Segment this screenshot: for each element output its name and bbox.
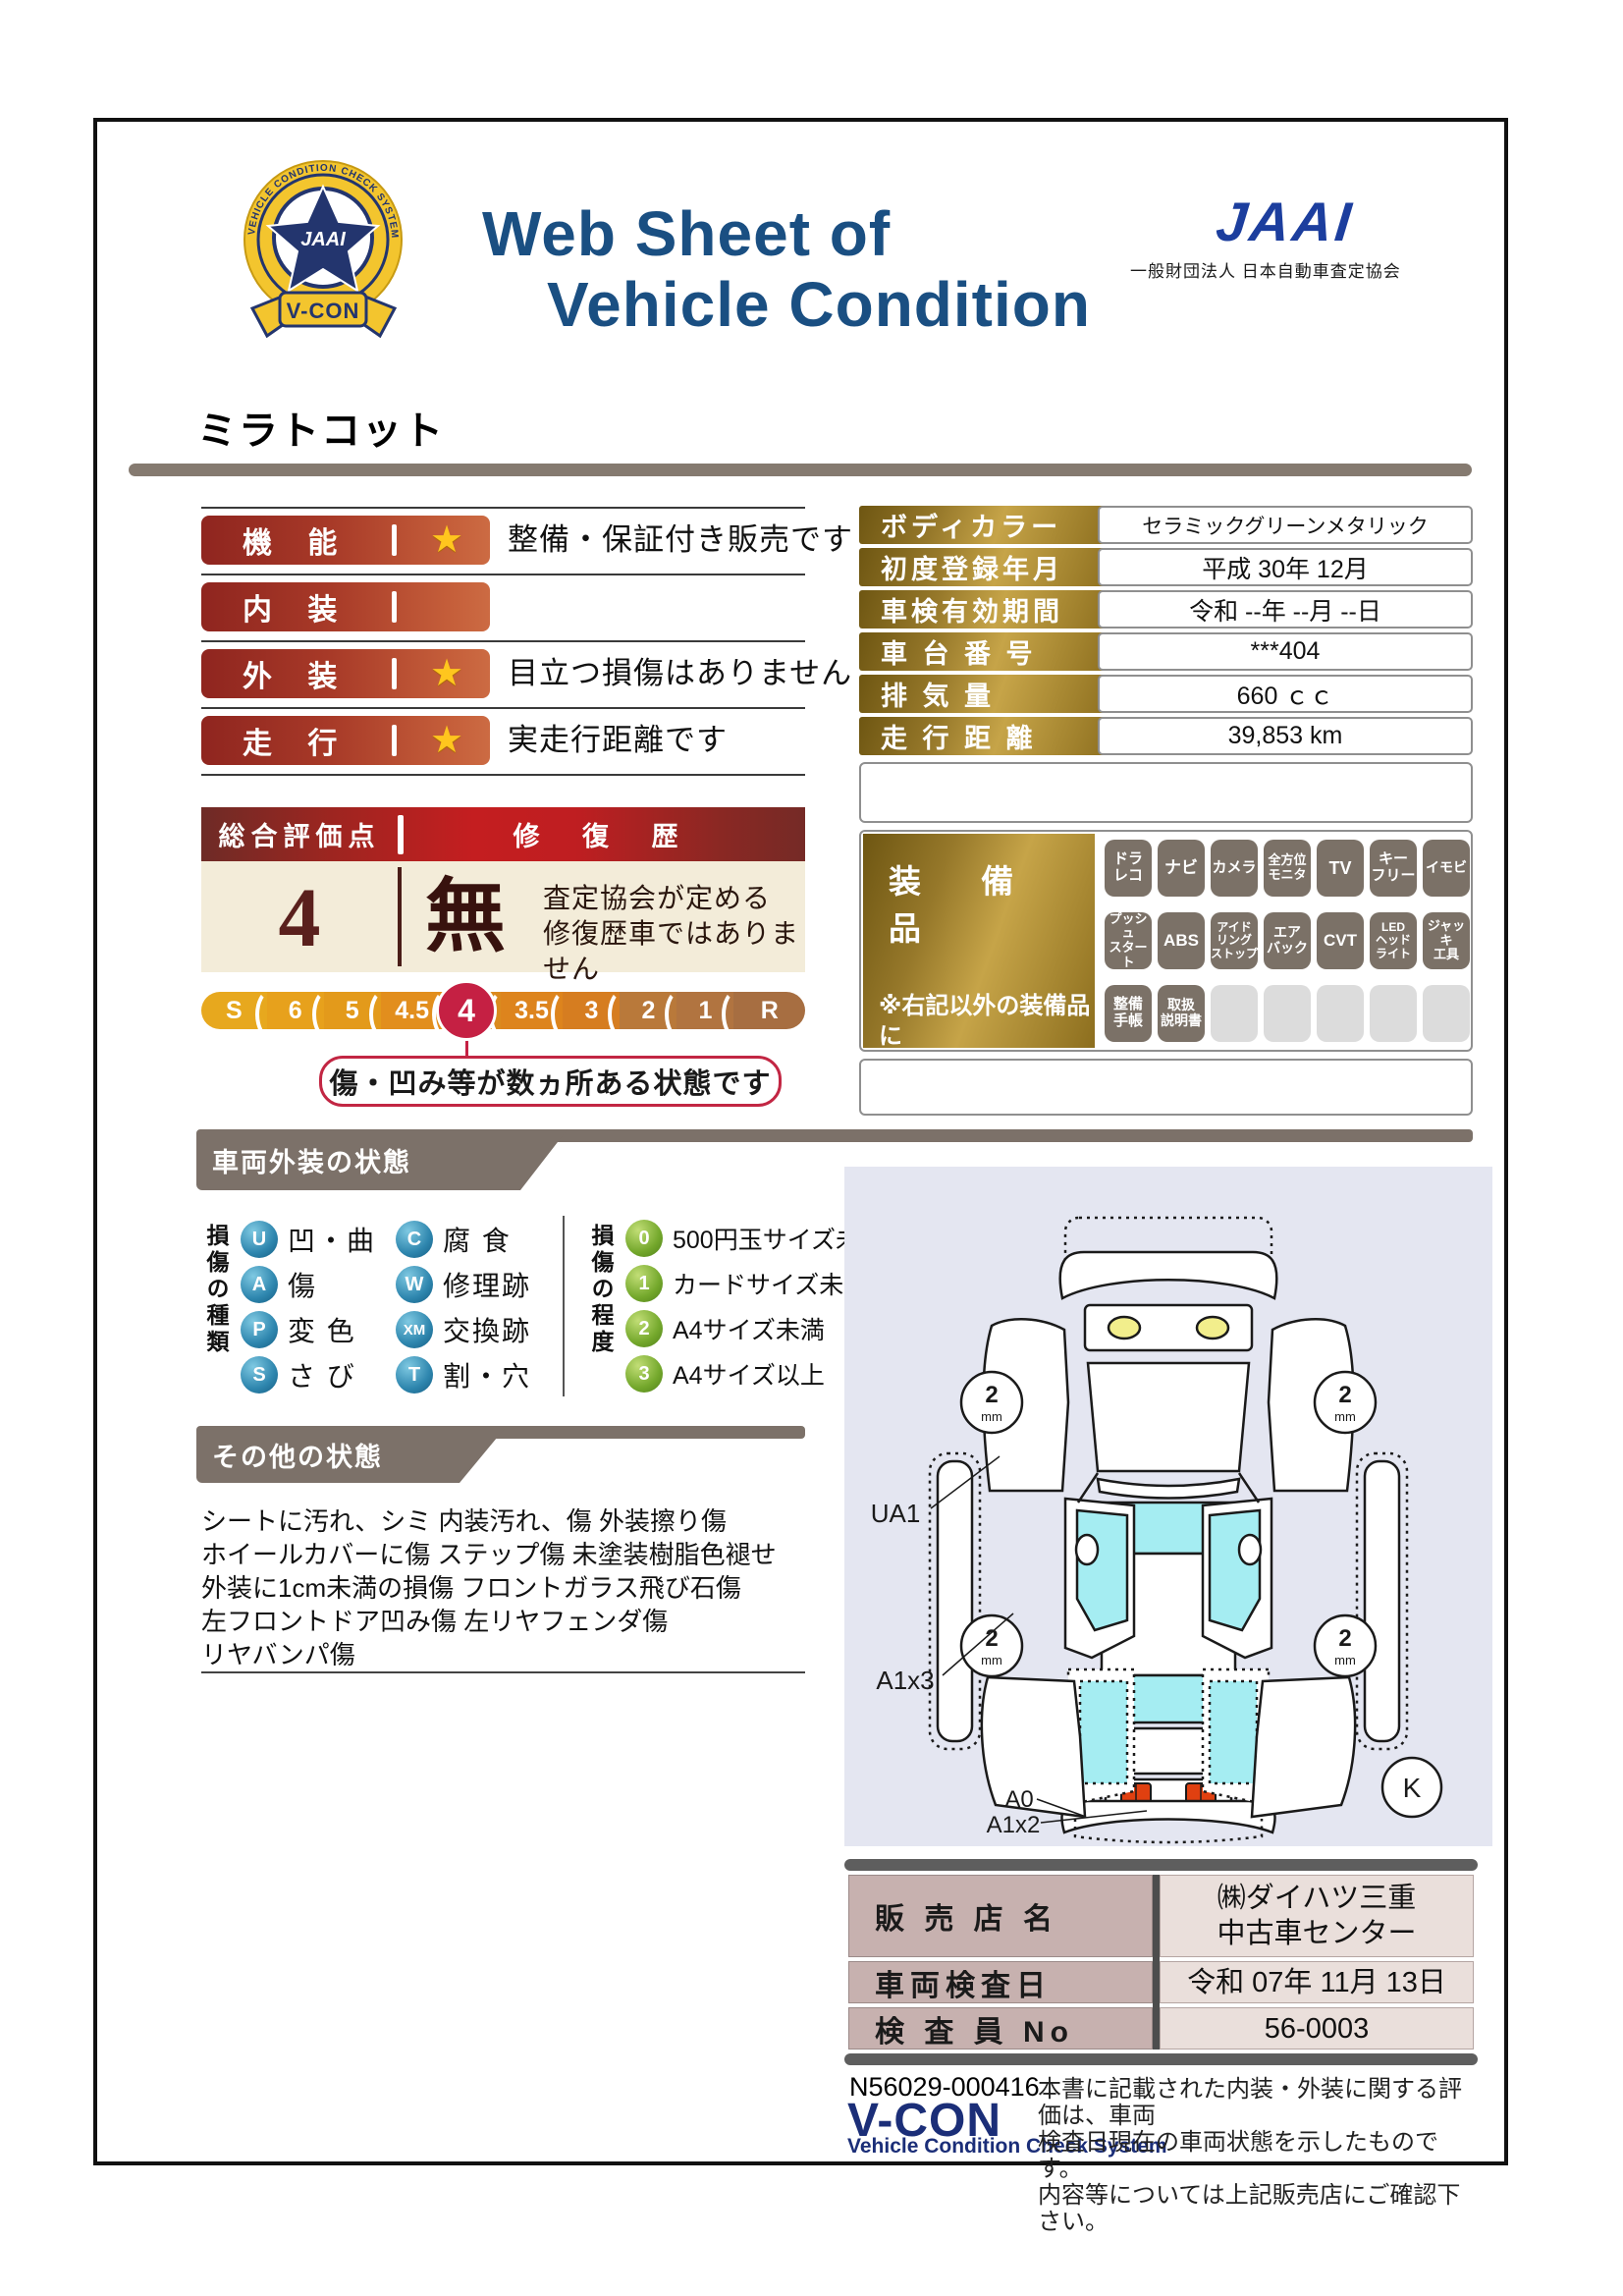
equipment-badge: ドラ レコ	[1105, 840, 1152, 897]
damage-mark-a1x2: A1x2	[987, 1812, 1041, 1838]
other-section-title: その他の状態	[196, 1426, 507, 1483]
right-rear-door-window	[1210, 1681, 1257, 1783]
equipment-badge: アイド リング ストップ	[1211, 912, 1258, 969]
diagram-k-label: K	[1403, 1773, 1422, 1803]
tread-value: 2	[1338, 1625, 1351, 1652]
rating-comment: 実走行距離です	[508, 716, 728, 765]
damage-type-item: S さ び	[241, 1355, 356, 1394]
equipment-badge: 整備 手帳	[1105, 985, 1152, 1042]
rating-comment: 整備・保証付き販売です	[508, 516, 853, 565]
equipment-badge: CVT	[1317, 912, 1364, 969]
equipment-panel: 装 備 品 ※右記以外の装備品に ついてはスタッフに お尋ねください。 ドラ レ…	[859, 830, 1473, 1052]
left-rear-door-window	[1080, 1681, 1127, 1783]
damage-degree-item: 3 A4サイズ以上	[625, 1355, 825, 1393]
scale-callout-pill: 傷・凹み等が数ヵ所ある状態です	[319, 1056, 782, 1107]
exterior-damage-diagram: 2 mm 2 mm 2 mm 2 mm UA1 A1x3 A0 A1x2 K	[844, 1167, 1492, 1846]
equipment-badge: ナビ	[1158, 840, 1205, 897]
damage-type-item: A 傷	[241, 1265, 317, 1304]
equipment-badge: LED ヘッド ライト	[1370, 912, 1417, 969]
disclaimer-text: 本書に記載された内装・外装に関する評価は、車両 検査日現在の車両状態を示したもの…	[1038, 2076, 1480, 2235]
damage-label: 割・穴	[443, 1355, 531, 1394]
info-value-mileage: 39,853 km	[1098, 717, 1473, 755]
rating-bar-mileage: 走 行 ★	[201, 716, 490, 765]
damage-type-item: XM 交換跡	[396, 1310, 531, 1349]
overall-header-right: 修 復 歴	[404, 815, 805, 853]
rating-separator	[392, 725, 397, 756]
rating-separator	[392, 524, 397, 556]
rating-separator	[392, 658, 397, 689]
right-side-sill	[1365, 1461, 1399, 1741]
star-icon: ★	[430, 722, 463, 759]
left-side-sill	[938, 1461, 972, 1741]
windshield	[1088, 1363, 1249, 1471]
overall-score-panel: 総合評価点 修 復 歴 4 無 査定協会が定める 修復歴車ではありません	[201, 807, 805, 972]
left-mirror	[1076, 1535, 1098, 1564]
info-value-displacement: 660 ｃｃ	[1098, 675, 1473, 713]
rating-bar-exterior: 外 装 ★	[201, 649, 490, 698]
equipment-badge-empty	[1317, 985, 1364, 1042]
rating-bar-interior: 内 装	[201, 582, 490, 631]
scale-seg: R	[733, 992, 805, 1029]
equipment-badge-empty	[1423, 985, 1470, 1042]
star-icon: ★	[430, 655, 463, 692]
damage-label: 変 色	[288, 1310, 356, 1349]
damage-code-xm: XM	[396, 1311, 433, 1348]
dealer-table-bottom-bar	[844, 2053, 1478, 2065]
damage-code-a: A	[241, 1266, 278, 1303]
headlight-right-icon	[1197, 1317, 1228, 1339]
degree-label: カードサイズ未満	[673, 1266, 868, 1301]
tread-unit: mm	[1334, 1653, 1356, 1667]
right-rear-quarter	[1252, 1677, 1355, 1817]
equipment-badge: 取扱 説明書	[1158, 985, 1205, 1042]
rating-label: 内 装	[201, 585, 390, 629]
equipment-badge: TV	[1317, 840, 1364, 897]
degree-code-3: 3	[625, 1355, 663, 1393]
info-label: 車 台 番 号	[859, 632, 1113, 671]
left-front-door-window	[1077, 1510, 1127, 1630]
dealer-label: 販 売 店 名	[848, 1875, 1153, 1957]
info-label: 車検有効期間	[859, 590, 1113, 629]
rating-rule	[201, 574, 805, 575]
equipment-badge: ABS	[1158, 912, 1205, 969]
vcon-badge-logo: VEHICLE CONDITION CHECK SYSTEM JAAI V-CO…	[223, 143, 424, 361]
damage-degree-item: 1 カードサイズ未満	[625, 1265, 868, 1302]
info-value-chassis-number: ***404	[1098, 632, 1473, 671]
equipment-badge: エア バック	[1264, 912, 1311, 969]
front-bumper	[1060, 1252, 1277, 1298]
cowl	[1098, 1479, 1239, 1499]
rating-label: 走 行	[201, 719, 390, 762]
overall-header-left: 総合評価点	[201, 815, 398, 853]
star-icon: ★	[430, 521, 463, 559]
rating-rule	[201, 774, 805, 776]
equipment-badge: キー フリー	[1370, 840, 1417, 897]
dealer-table-divider	[1153, 1875, 1160, 2050]
info-empty-box	[859, 762, 1473, 823]
overall-divider	[398, 867, 402, 966]
vehicle-name: ミラトコット	[197, 399, 445, 456]
inspection-date-value: 令和 07年 11月 13日	[1160, 1961, 1474, 2003]
tread-value: 2	[985, 1625, 998, 1652]
legend-divider	[563, 1216, 565, 1396]
degree-code-1: 1	[625, 1265, 663, 1302]
damage-code-c: C	[396, 1221, 433, 1258]
other-section-rule	[201, 1671, 805, 1673]
damage-type-item: C 腐 食	[396, 1220, 512, 1259]
tread-unit: mm	[1334, 1409, 1356, 1424]
degree-code-2: 2	[625, 1310, 663, 1347]
overall-body: 4 無 査定協会が定める 修復歴車ではありません	[201, 861, 805, 972]
damage-mark-a1x3: A1x3	[876, 1666, 934, 1695]
rating-label: 機 能	[201, 519, 390, 562]
damage-label: 腐 食	[443, 1220, 512, 1259]
equipment-title: 装 備 品	[863, 834, 1095, 950]
info-value-first-registration: 平成 30年 12月	[1098, 548, 1473, 586]
info-value-bodycolor: セラミックグリーンメタリック	[1098, 506, 1473, 544]
damage-type-item: P 変 色	[241, 1310, 356, 1349]
scale-selected-score: 4	[436, 980, 497, 1041]
rating-rule	[201, 507, 805, 509]
rating-rule	[201, 640, 805, 642]
equipment-badge-empty	[1370, 985, 1417, 1042]
tread-value: 2	[985, 1382, 998, 1408]
sheet-title-line2: Vehicle Condition	[547, 273, 1091, 336]
inspector-number-value: 56-0003	[1160, 2007, 1474, 2050]
exterior-section-title: 車両外装の状態	[196, 1129, 568, 1190]
headlight-left-icon	[1109, 1317, 1140, 1339]
equipment-badge-empty	[1211, 985, 1258, 1042]
rating-bar-function: 機 能 ★	[201, 516, 490, 565]
damage-code-w: W	[396, 1266, 433, 1303]
damage-label: 凹・曲	[288, 1220, 376, 1259]
dealer-label: 検 査 員 No	[848, 2007, 1153, 2050]
equipment-empty-box	[859, 1059, 1473, 1116]
degree-label: A4サイズ未満	[673, 1311, 825, 1346]
damage-type-item: U 凹・曲	[241, 1220, 376, 1259]
info-label: 排 気 量	[859, 675, 1113, 713]
damage-mark-ua1: UA1	[871, 1499, 921, 1528]
rating-comment: 目立つ損傷はありません	[508, 649, 852, 698]
repair-history-flag: 無	[425, 863, 506, 970]
badge-center-text: JAAI	[300, 229, 346, 250]
info-label: 初度登録年月	[859, 548, 1113, 586]
equipment-badge: カメラ	[1211, 840, 1258, 897]
sheet-page: VEHICLE CONDITION CHECK SYSTEM JAAI V-CO…	[93, 118, 1508, 2165]
equipment-badge: 全方位 モニタ	[1264, 840, 1311, 897]
equipment-gold-cell: 装 備 品 ※右記以外の装備品に ついてはスタッフに お尋ねください。	[863, 834, 1095, 1048]
rating-rule	[201, 707, 805, 709]
repair-history-note: 査定協会が定める 修復歴車ではありません	[543, 881, 805, 987]
car-expanded-view: 2 mm 2 mm 2 mm 2 mm UA1 A1x3 A0 A1x2 K	[844, 1167, 1492, 1846]
tread-unit: mm	[981, 1653, 1002, 1667]
dealer-label: 車両検査日	[848, 1961, 1153, 2003]
overall-score: 4	[201, 861, 398, 972]
sheet-title-line1: Web Sheet of	[482, 202, 891, 265]
dealer-name-value: ㈱ダイハツ三重 中古車センター	[1160, 1875, 1474, 1957]
top-divider	[129, 464, 1472, 476]
damage-type-axis-label: 損傷の種類	[199, 1224, 233, 1356]
overall-header: 総合評価点 修 復 歴	[201, 807, 805, 861]
damage-label: 交換跡	[443, 1310, 531, 1349]
tread-value: 2	[1338, 1382, 1351, 1408]
damage-label: さ び	[288, 1355, 356, 1394]
damage-type-item: T 割・穴	[396, 1355, 531, 1394]
damage-degree-item: 2 A4サイズ未満	[625, 1310, 825, 1347]
degree-code-0: 0	[625, 1220, 663, 1257]
damage-mark-a0: A0	[1004, 1786, 1033, 1813]
damage-code-t: T	[396, 1356, 433, 1394]
damage-type-item: W 修理跡	[396, 1265, 531, 1304]
damage-code-p: P	[241, 1311, 278, 1348]
damage-label: 修理跡	[443, 1265, 531, 1304]
info-value-inspection-validity: 令和 --年 --月 --日	[1098, 590, 1473, 629]
other-condition-text: シートに汚れ、シミ 内装汚れ、傷 外装擦り傷 ホイールカバーに傷 ステップ傷 未…	[201, 1504, 810, 1671]
score-scale-bar: S 6 5 4.5 4 3.5 3 2 1 R	[201, 992, 805, 1029]
rating-label: 外 装	[201, 652, 390, 695]
right-front-door-window	[1210, 1510, 1260, 1630]
jaai-subtitle: 一般財団法人 日本自動車査定協会	[1130, 257, 1401, 282]
damage-degree-axis-label: 損傷の程度	[584, 1224, 618, 1356]
jaai-logo: JAAI	[1214, 194, 1356, 249]
damage-code-u: U	[241, 1221, 278, 1258]
equipment-badge: プッシュ スタート	[1105, 912, 1152, 969]
equipment-badge: ジャッキ 工具	[1423, 912, 1470, 969]
right-mirror	[1239, 1535, 1261, 1564]
info-label: 走 行 距 離	[859, 717, 1113, 755]
equipment-badge: イモビ	[1423, 840, 1470, 897]
badge-ribbon-text: V-CON	[287, 299, 360, 323]
tread-unit: mm	[981, 1409, 1002, 1424]
rating-separator	[392, 591, 397, 623]
info-label: ボディカラー	[859, 506, 1113, 544]
damage-code-s: S	[241, 1356, 278, 1394]
damage-label: 傷	[288, 1265, 317, 1304]
degree-label: A4サイズ以上	[673, 1356, 825, 1392]
equipment-badge-empty	[1264, 985, 1311, 1042]
dealer-table-top-bar	[844, 1859, 1478, 1871]
